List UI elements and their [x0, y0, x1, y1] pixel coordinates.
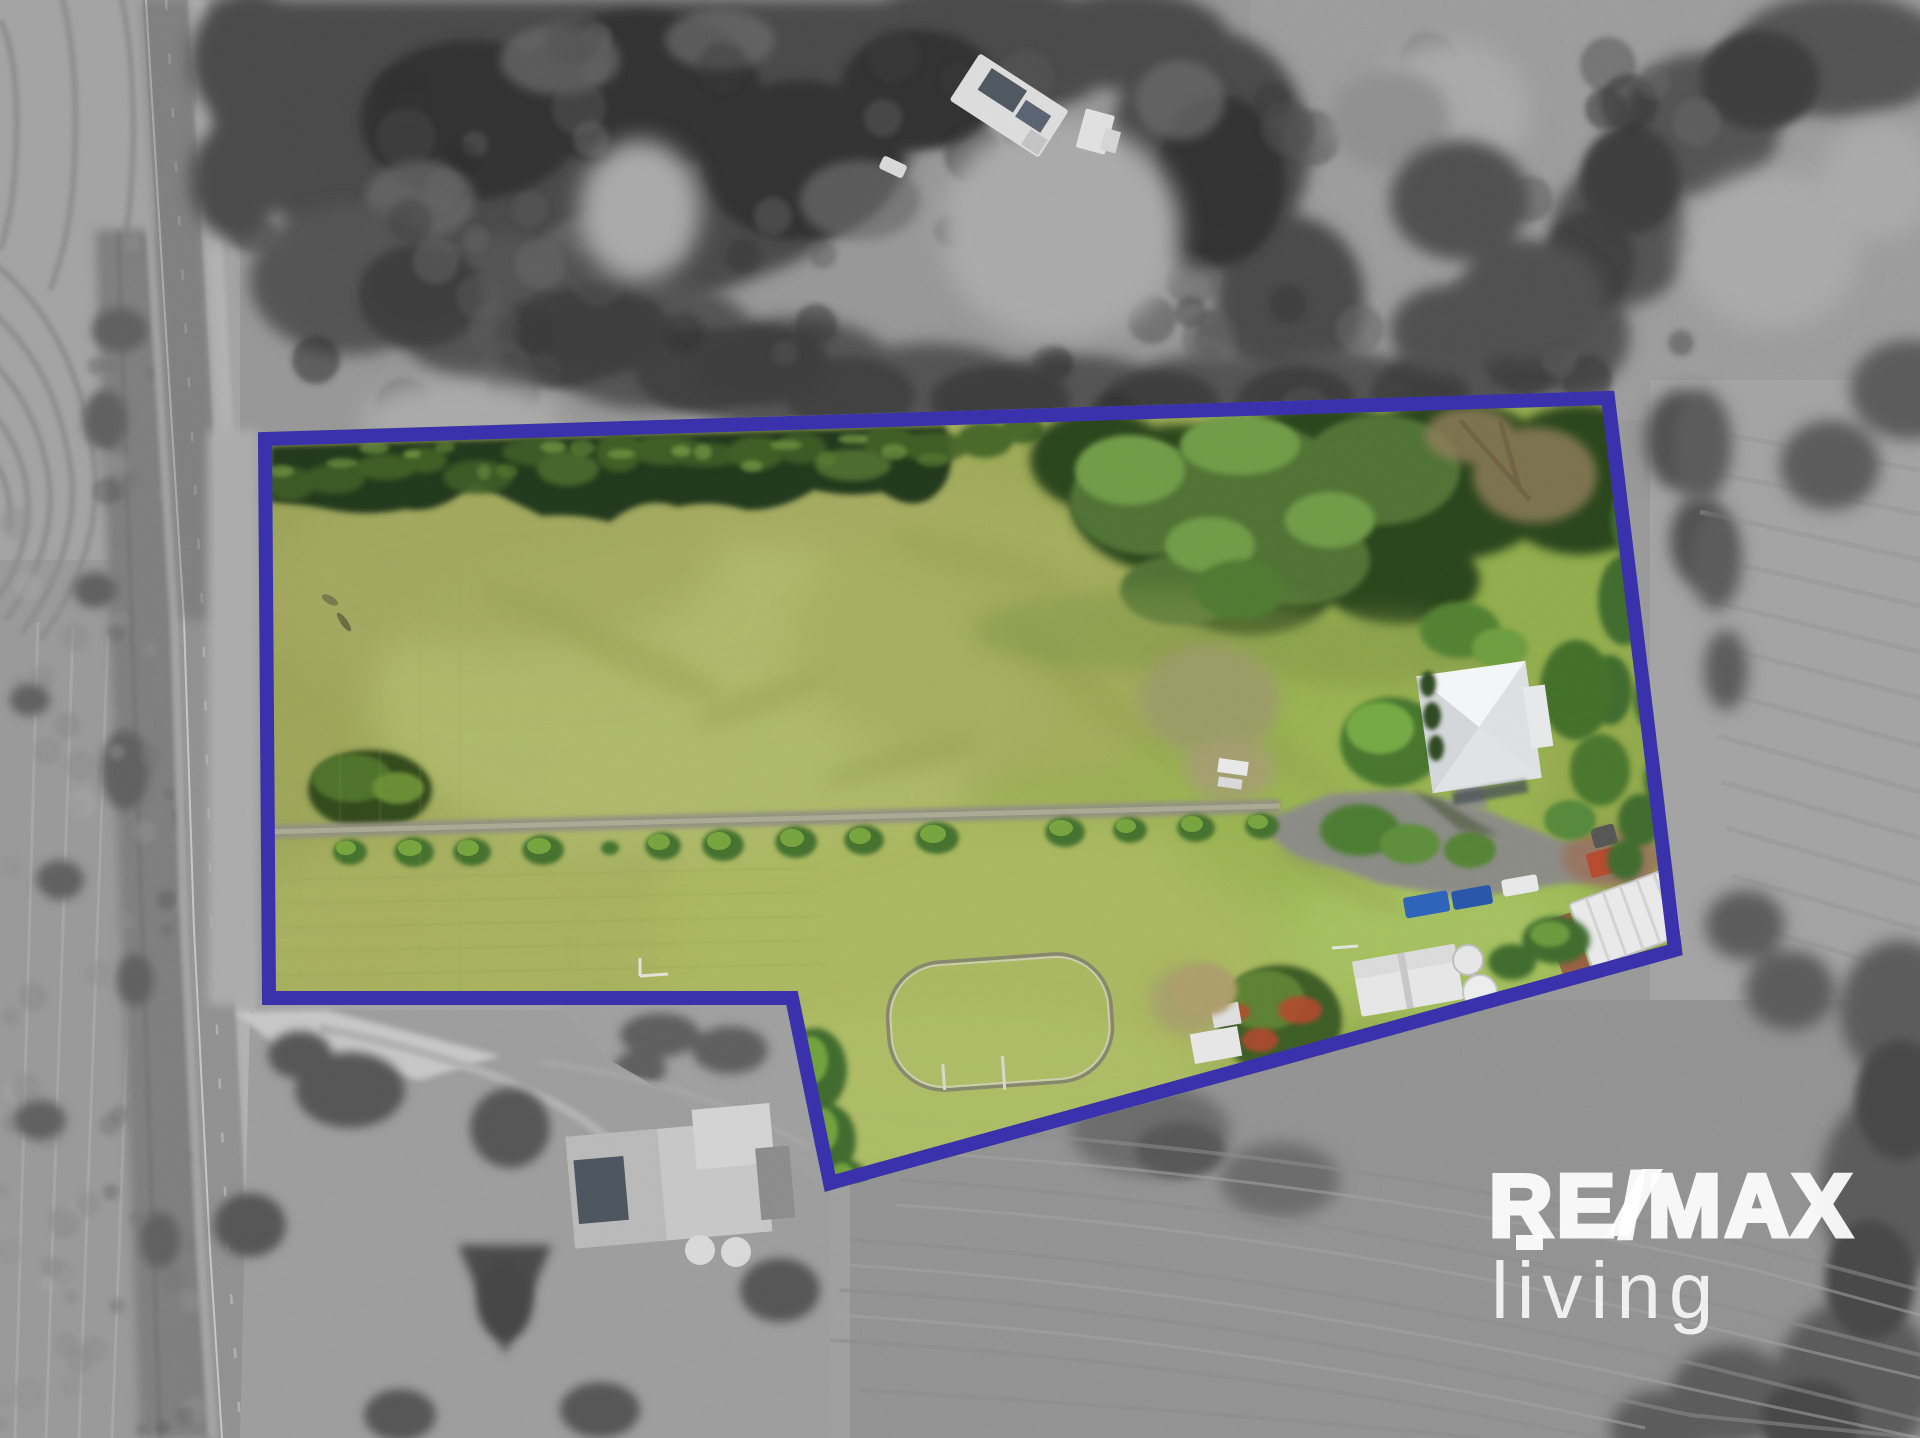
svg-text:RE/MAX: RE/MAX: [1489, 1156, 1855, 1255]
svg-text:living: living: [1491, 1246, 1721, 1335]
